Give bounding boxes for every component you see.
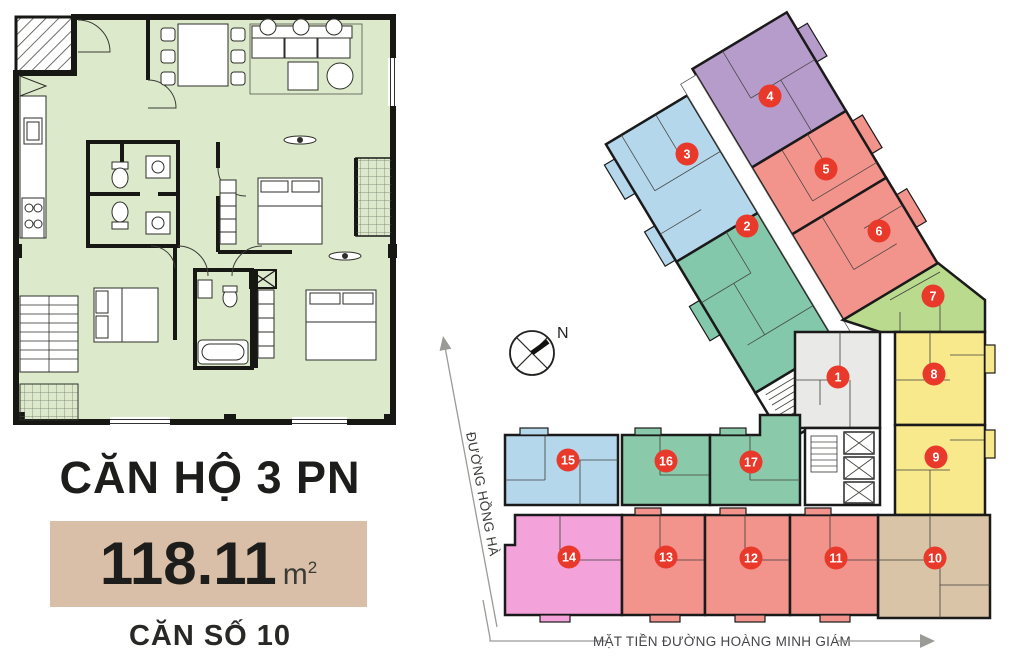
svg-text:2: 2 bbox=[744, 220, 751, 234]
dining-set bbox=[161, 24, 245, 86]
badge-unit-10: 10 bbox=[924, 547, 947, 570]
site-plan-svg: 1 2 3 4 5 6 7 8 9 10 11 12 bbox=[420, 0, 1024, 671]
page: CĂN HỘ 3 PN 118.11 m2 CĂN SỐ 10 bbox=[0, 0, 1024, 671]
street-hong-ha: ĐƯỜNG HỒNG HÀ bbox=[440, 336, 502, 627]
svg-text:11: 11 bbox=[829, 552, 842, 566]
badge-unit-17: 17 bbox=[740, 451, 763, 474]
badge-unit-16: 16 bbox=[655, 450, 678, 473]
hatched-corner-void bbox=[16, 17, 74, 73]
loggia-grid bbox=[356, 158, 392, 236]
area-unit: m2 bbox=[283, 558, 317, 592]
badge-unit-1: 1 bbox=[827, 366, 850, 389]
badge-unit-3: 3 bbox=[676, 143, 699, 166]
svg-text:1: 1 bbox=[835, 371, 842, 385]
street-arrow-right-icon bbox=[920, 634, 935, 648]
svg-text:8: 8 bbox=[931, 368, 938, 382]
badge-unit-14: 14 bbox=[558, 546, 581, 569]
svg-text:13: 13 bbox=[659, 551, 673, 565]
svg-text:12: 12 bbox=[744, 552, 758, 566]
badge-unit-7: 7 bbox=[922, 285, 945, 308]
badge-unit-5: 5 bbox=[815, 158, 838, 181]
badge-unit-15: 15 bbox=[557, 449, 580, 472]
service-area-grids bbox=[20, 296, 78, 420]
elevator-core bbox=[805, 428, 880, 505]
svg-text:14: 14 bbox=[562, 551, 576, 565]
street-hong-ha-label: ĐƯỜNG HỒNG HÀ bbox=[463, 431, 502, 558]
svg-text:3: 3 bbox=[684, 148, 691, 162]
badge-unit-8: 8 bbox=[923, 363, 946, 386]
street-arrow-up-icon bbox=[440, 336, 452, 351]
svg-text:17: 17 bbox=[744, 456, 758, 470]
apartment-floorplan-svg bbox=[0, 0, 420, 440]
badge-unit-11: 11 bbox=[825, 547, 848, 570]
badge-unit-9: 9 bbox=[925, 446, 948, 469]
area-value: 118.11 bbox=[100, 521, 277, 607]
badge-unit-4: 4 bbox=[759, 85, 782, 108]
svg-text:9: 9 bbox=[933, 451, 940, 465]
area-box: 118.11 m2 bbox=[50, 521, 367, 607]
badge-unit-13: 13 bbox=[655, 546, 678, 569]
kitchen-counter bbox=[20, 76, 46, 238]
svg-text:7: 7 bbox=[930, 290, 937, 304]
svg-text:6: 6 bbox=[876, 225, 883, 239]
unit-type-title: CĂN HỘ 3 PN bbox=[0, 452, 420, 504]
svg-text:15: 15 bbox=[561, 454, 575, 468]
unit-9-area bbox=[895, 425, 985, 515]
compass-icon: N bbox=[510, 325, 569, 375]
svg-text:4: 4 bbox=[767, 90, 774, 104]
svg-text:5: 5 bbox=[823, 163, 830, 177]
badge-unit-6: 6 bbox=[868, 220, 891, 243]
badge-unit-12: 12 bbox=[740, 547, 763, 570]
svg-text:16: 16 bbox=[659, 455, 673, 469]
street-hoang-minh-giam-label: MẶT TIỀN ĐƯỜNG HOÀNG MINH GIÁM bbox=[593, 634, 851, 649]
unit-8-balcony bbox=[985, 345, 995, 373]
compass-north-label: N bbox=[557, 325, 569, 342]
unit-number-label: CĂN SỐ 10 bbox=[0, 620, 420, 653]
badge-unit-2: 2 bbox=[736, 215, 759, 238]
unit-9-balcony bbox=[985, 430, 995, 458]
unit-15-area bbox=[505, 435, 618, 505]
area-unit-exponent: 2 bbox=[308, 558, 317, 577]
svg-text:10: 10 bbox=[928, 552, 942, 566]
